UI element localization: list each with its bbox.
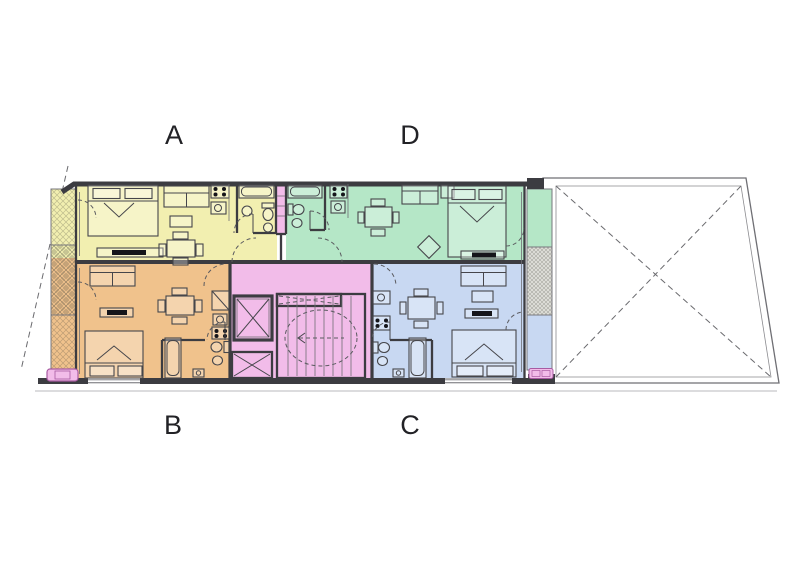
coffee-table	[472, 291, 493, 302]
window-c	[445, 378, 512, 383]
balcony-left-hatch-dense	[51, 245, 77, 315]
balcony-d	[527, 189, 552, 247]
ac-unit-left	[47, 369, 78, 381]
coffee-table	[170, 216, 192, 227]
tv-unit	[465, 309, 498, 318]
double-bed	[448, 186, 506, 257]
label-unit-a: A	[165, 120, 183, 150]
wall-corner-topright	[527, 178, 544, 189]
label-unit-d: D	[400, 120, 420, 150]
balcony-left	[51, 189, 77, 378]
balcony-c	[527, 315, 552, 370]
sofa	[90, 266, 135, 286]
sofa	[461, 266, 506, 286]
balcony-right	[527, 189, 552, 370]
double-bed	[85, 331, 143, 378]
double-bed	[88, 185, 158, 236]
label-unit-b: B	[164, 410, 182, 440]
sofa	[164, 186, 209, 207]
floor-plan-page: A D B C	[0, 0, 800, 567]
balcony-right-hatch	[527, 247, 552, 315]
ac-unit-right	[529, 369, 553, 379]
terrace	[543, 178, 779, 383]
duct-shaft	[276, 184, 286, 234]
kitchen	[330, 184, 348, 218]
window-b	[88, 378, 140, 383]
label-unit-c: C	[400, 410, 420, 440]
tv-unit	[97, 248, 163, 257]
floor-plan-drawing: A D B C	[0, 0, 800, 567]
double-bed	[452, 330, 516, 377]
tv-unit	[461, 251, 504, 259]
sofa	[402, 185, 438, 204]
kitchen	[212, 291, 229, 339]
tv-unit	[100, 308, 133, 317]
